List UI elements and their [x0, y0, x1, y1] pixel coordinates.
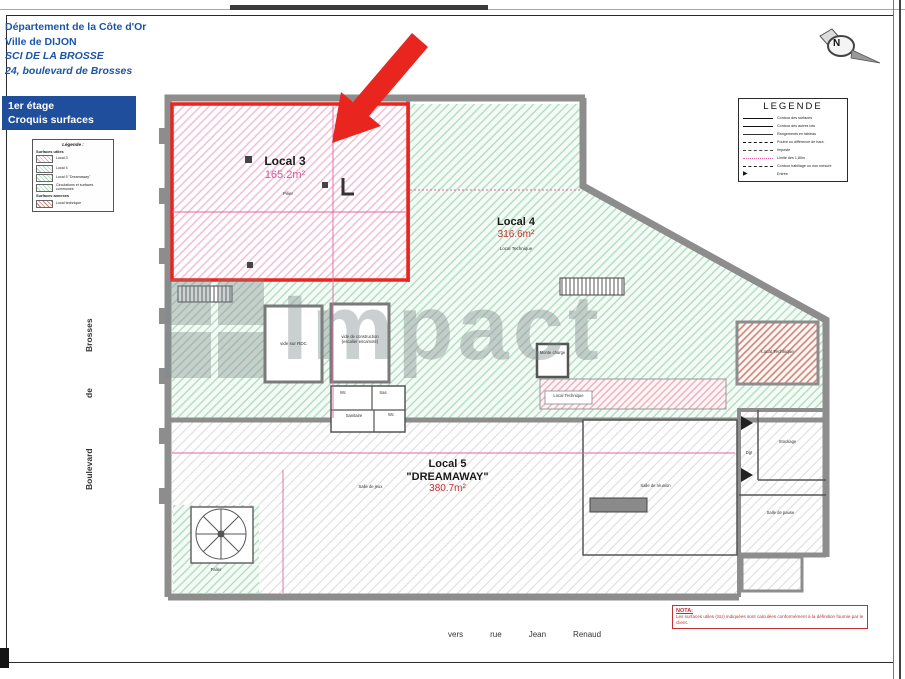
mini-legend-label: Local 3 [56, 157, 68, 161]
room-label-stockage: Stockage [765, 440, 810, 445]
entrance-arrow-sample: ▶ [743, 171, 773, 177]
local4-note: Local Technique [478, 246, 554, 251]
footer-direction: vers rue Jean Renaud [448, 630, 601, 639]
room-label-vide-rdc: vide sur RDC [265, 341, 322, 346]
legend-row: Imposte [743, 146, 843, 154]
mini-legend-label: Circulations et surfaces communes [56, 184, 110, 192]
legend-row: Contour des surfaces [743, 114, 843, 122]
local4-area: 316.6m² [478, 229, 554, 241]
local5-area: 380.7m² [390, 483, 505, 495]
room-label-salle-reunion: Salle de réunion [628, 484, 683, 489]
scan-right-line-2 [899, 0, 901, 679]
room-label-salle-pause: Salle de pause [753, 511, 808, 516]
mini-legend-box: Légende : Surfaces utiles Local 3 Local … [32, 139, 114, 212]
local5-name: Local 5 [390, 458, 505, 471]
street-word-brosses: Brosses [84, 318, 94, 352]
footer-word: rue [490, 630, 502, 639]
dashed-line-sample [743, 142, 773, 143]
stage-line: 1er étage [8, 99, 130, 113]
local3-label-group: Local 3 165.2m² [240, 155, 330, 181]
legend-label: Contour des autres lots [777, 124, 815, 128]
pink-hatch-swatch [36, 155, 53, 163]
thin-line-sample [743, 134, 773, 135]
room-label-wc2: Wc [381, 413, 401, 418]
mini-legend-row: Circulations et surfaces communes [36, 184, 110, 192]
solid-thick-line-sample [743, 118, 773, 119]
legend-row: Poutre ou différence de haut. [743, 138, 843, 146]
room-label-wc1: Wc [333, 391, 353, 396]
green-hatch-swatch [36, 184, 53, 192]
mini-legend-title: Légende : [36, 142, 110, 147]
header-line-ville: Ville de DIJON [5, 35, 225, 50]
header-line-departement: Département de la Côte d'Or [5, 20, 225, 35]
green-hatch-swatch [36, 165, 53, 173]
legend-label: Poutre ou différence de haut. [777, 140, 825, 144]
legend-label: Contour habillage ou non mesuré [777, 164, 832, 168]
footer-word: Renaud [573, 630, 601, 639]
mini-legend-label: Local 5 "Dreamaway" [56, 176, 90, 180]
local4-name: Local 4 [478, 216, 554, 229]
room-label-local-technique-band: Local Technique [545, 394, 592, 399]
room-label-palier: Palier [200, 568, 232, 573]
legend-row: Limite des 1,80m [743, 154, 843, 162]
dash-dot-line-sample [743, 166, 773, 167]
room-label-salle-jeux: Salle de jeux [343, 485, 398, 490]
legend-row: Contour des autres lots [743, 122, 843, 130]
mini-legend-row: Local 4 [36, 165, 110, 173]
sheet-type-line: Croquis surfaces [8, 113, 130, 127]
legend-label: Rangements en tableau [777, 132, 816, 136]
scan-top-thick-line [230, 5, 488, 10]
scan-right-line-1 [893, 0, 894, 679]
scan-bottom-left-mark [0, 648, 9, 668]
scanned-floor-plan-sheet: Département de la Côte d'Or Ville de DIJ… [0, 0, 905, 679]
title-block: Département de la Côte d'Or Ville de DIJ… [5, 20, 225, 78]
legend-label: Entrée [777, 172, 788, 176]
mini-legend-heading-annexes: Surfaces annexes [36, 193, 110, 198]
mini-legend-row: Local technique [36, 200, 110, 208]
nota-text: Les surfaces utiles (SU) indiquées sont … [676, 614, 864, 626]
red-hatch-swatch [36, 200, 53, 208]
header-line-adresse: 24, boulevard de Brosses [5, 64, 225, 79]
room-label-sanitaire: Sanitaire [334, 414, 374, 419]
legend-row: Contour habillage ou non mesuré [743, 162, 843, 170]
mini-legend-label: Local technique [56, 202, 81, 206]
street-word-boulevard: Boulevard [84, 448, 94, 490]
legend-label: Contour des surfaces [777, 116, 812, 120]
legend-row: Rangements en tableau [743, 130, 843, 138]
nota-box: NOTA: Les surfaces utiles (SU) indiquées… [672, 605, 868, 629]
local5-label-group: Local 5 "DREAMAWAY" 380.7m² [390, 458, 505, 495]
legend-row: ▶Entrée [743, 170, 843, 178]
legend-label: Limite des 1,80m [777, 156, 805, 160]
small-dashed-line-sample [743, 150, 773, 151]
legend-box: LEGENDE Contour des surfaces Contour des… [738, 98, 848, 182]
green-hatch-swatch [36, 174, 53, 182]
local4-label-group: Local 4 316.6m² [478, 216, 554, 240]
room-label-monte-charge: Monte charge [537, 351, 568, 356]
mini-legend-row: Local 3 [36, 155, 110, 163]
local3-area: 165.2m² [240, 169, 330, 182]
solid-line-sample [743, 126, 773, 127]
pink-dotted-line-sample [743, 158, 773, 159]
local3-note: Pilier [268, 191, 308, 196]
vide-construction-line2: (escalier escamoté) [329, 340, 391, 345]
footer-word: vers [448, 630, 463, 639]
room-label-dgt: Dgt [740, 451, 758, 456]
footer-word: Jean [529, 630, 546, 639]
mini-legend-heading-utiles: Surfaces utiles [36, 149, 110, 154]
street-word-de: de [84, 388, 94, 398]
legend-label: Imposte [777, 148, 790, 152]
room-label-vide-construction: vide de construction (escalier escamoté) [329, 335, 391, 345]
stage-title-box: 1er étage Croquis surfaces [2, 96, 136, 130]
room-label-sas: Sas [373, 391, 393, 396]
legend-title: LEGENDE [743, 101, 843, 112]
mini-legend-label: Local 4 [56, 167, 68, 171]
mini-legend-row: Local 5 "Dreamaway" [36, 174, 110, 182]
local5-alias: "DREAMAWAY" [390, 471, 505, 484]
room-label-local-technique-box: Local Technique [737, 349, 818, 354]
local3-name: Local 3 [240, 155, 330, 169]
north-letter: N [833, 38, 840, 49]
header-line-sci: SCI DE LA BROSSE [5, 49, 225, 64]
